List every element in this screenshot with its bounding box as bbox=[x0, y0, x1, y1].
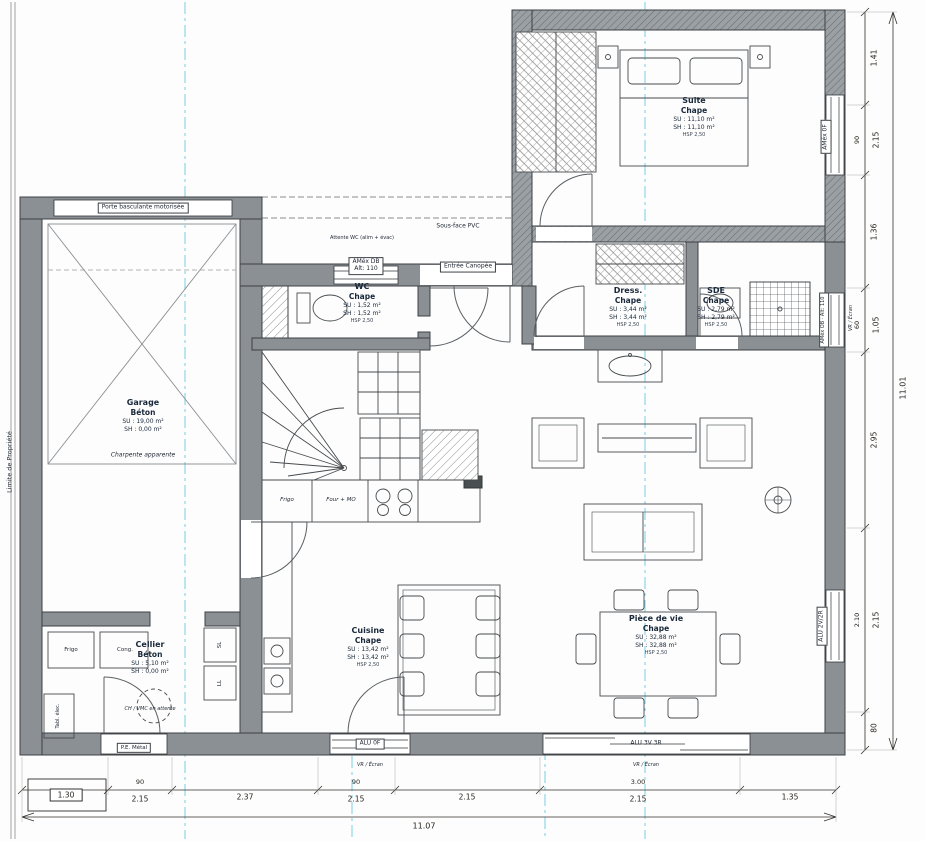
dim-right-4: 2.95 bbox=[870, 432, 879, 449]
room-name: Pièce de vie bbox=[629, 614, 683, 624]
room-label-dress: Dress. Chape SU : 3,44 m² SH : 3,44 m² H… bbox=[609, 286, 647, 328]
appliance-lave-linge: LL bbox=[217, 680, 223, 686]
dim-right-2: 1.36 bbox=[870, 224, 879, 241]
dim-bottom-5: 2.15 bbox=[630, 795, 647, 804]
room-hsp: HSP 2,50 bbox=[343, 318, 381, 325]
dim-bottom-3-width: 90 bbox=[352, 778, 360, 786]
duct-shaft bbox=[262, 286, 288, 338]
living-furniture bbox=[532, 418, 791, 718]
room-su: SU : 3,44 m² bbox=[609, 306, 647, 314]
room-sh: SH : 1,52 m² bbox=[343, 310, 381, 318]
kitchen-counters bbox=[262, 480, 480, 712]
room-floor: Chape bbox=[673, 106, 715, 116]
room-sh: SH : 2,79 m² bbox=[697, 314, 735, 322]
garage-note: Charpente apparente bbox=[111, 453, 175, 460]
bedroom-furniture bbox=[516, 32, 770, 172]
vr-ecran-label-1: VR / Écran bbox=[357, 763, 383, 769]
room-name: Cuisine bbox=[347, 626, 389, 636]
room-su: SU : 2,79 m² bbox=[697, 306, 735, 314]
room-sh: SH : 0,00 m² bbox=[131, 668, 169, 676]
appliance-tableau: Tabl. élec. bbox=[56, 704, 62, 729]
room-floor: Béton bbox=[122, 408, 163, 418]
room-label-sde: SDE Chape SU : 2,79 m² SH : 2,79 m² HSP … bbox=[697, 286, 735, 328]
dim-right-3: 1.05 bbox=[872, 317, 881, 334]
room-su: SU : 32,88 m² bbox=[629, 634, 683, 642]
room-floor: Chape bbox=[347, 636, 389, 646]
room-floor: Chape bbox=[343, 292, 381, 302]
dim-bottom-5-width: 3.00 bbox=[631, 778, 645, 786]
property-line bbox=[11, 2, 15, 839]
room-sh: SH : 13,42 m² bbox=[347, 654, 389, 662]
dim-right-5: 2.15 bbox=[872, 612, 881, 629]
window-alu-0f-label: ALU 0F bbox=[356, 739, 385, 750]
dim-bottom-0: 1.30 bbox=[50, 789, 83, 802]
room-floor: Chape bbox=[697, 296, 735, 306]
room-sh: SH : 0,00 m² bbox=[122, 426, 163, 434]
dim-right-3-width: 60 bbox=[853, 321, 861, 329]
sous-face-label: Sous-face PVC bbox=[436, 224, 479, 231]
canopy-entry-label: Entrée Canopée bbox=[440, 262, 496, 273]
room-name: SDE bbox=[697, 286, 735, 296]
room-name: WC bbox=[343, 282, 381, 292]
room-sh: SH : 11,10 m² bbox=[673, 124, 715, 132]
dim-bottom-3: 2.15 bbox=[348, 795, 365, 804]
room-name: Suite bbox=[673, 96, 715, 106]
dim-right-1: 2.15 bbox=[872, 132, 881, 149]
dim-bottom-1: 2.15 bbox=[132, 795, 149, 804]
room-name: Cellier bbox=[131, 640, 169, 650]
room-su: SU : 1,52 m² bbox=[343, 302, 381, 310]
window-glazing-lines bbox=[332, 97, 839, 750]
room-su: SU : 19,00 m² bbox=[122, 418, 163, 426]
appliance-congelateur: Cong. bbox=[117, 647, 133, 653]
room-label-garage: Garage Béton SU : 19,00 m² SH : 0,00 m² bbox=[122, 398, 163, 434]
room-label-suite: Suite Chape SU : 11,10 m² SH : 11,10 m² … bbox=[673, 96, 715, 138]
room-label-wc: WC Chape SU : 1,52 m² SH : 1,52 m² HSP 2… bbox=[343, 282, 381, 324]
window-amex-0f-label: AMéx 0F bbox=[821, 120, 832, 154]
dim-right-5-width: 2.10 bbox=[853, 613, 861, 627]
room-su: SU : 11,10 m² bbox=[673, 116, 715, 124]
room-floor: Chape bbox=[609, 296, 647, 306]
dim-bottom-4: 2.15 bbox=[459, 793, 476, 802]
room-hsp: HSP 2,50 bbox=[629, 650, 683, 657]
floor-plan: Suite Chape SU : 11,10 m² SH : 11,10 m² … bbox=[0, 0, 925, 841]
appliance-frigo-cellier: Frigo bbox=[64, 647, 77, 653]
room-hsp: HSP 2,50 bbox=[609, 322, 647, 329]
room-sh: SH : 3,44 m² bbox=[609, 314, 647, 322]
room-floor: Chape bbox=[629, 624, 683, 634]
room-hsp: HSP 2,50 bbox=[673, 132, 715, 139]
appliance-four-mo: Four + MO bbox=[326, 497, 355, 503]
room-label-cuisine: Cuisine Chape SU : 13,42 m² SH : 13,42 m… bbox=[347, 626, 389, 668]
garage-door-label: Porte basculante motorisée bbox=[98, 203, 189, 214]
dim-right-total: 11.01 bbox=[899, 377, 908, 400]
window-alt: Alt: 110 bbox=[352, 266, 379, 273]
room-name: Garage bbox=[122, 398, 163, 408]
room-sh: SH : 32,88 m² bbox=[629, 642, 683, 650]
dim-right-0: 1.41 bbox=[870, 50, 879, 67]
dim-right-6: 80 bbox=[870, 723, 879, 733]
cellier-note: CH / VMC en attente bbox=[124, 707, 175, 713]
door-pe-metal-label: P.E. Métal bbox=[117, 743, 151, 753]
dim-bottom-2: 2.37 bbox=[237, 793, 254, 802]
room-hsp: HSP 2,50 bbox=[697, 322, 735, 329]
window-amex-db-label: AMéx DB Alt: 110 bbox=[348, 257, 383, 275]
room-su: SU : 5,10 m² bbox=[131, 660, 169, 668]
staircase bbox=[262, 350, 478, 480]
kitchen-island bbox=[398, 585, 500, 715]
dim-right-1-width: 90 bbox=[853, 136, 861, 144]
room-name: Dress. bbox=[609, 286, 647, 296]
room-su: SU : 13,42 m² bbox=[347, 646, 389, 654]
window-alu-2v2r-label: ALU 2V/2R bbox=[817, 606, 828, 645]
vr-ecran-label-2: VR / Écran bbox=[633, 763, 659, 769]
dim-bottom-1-width: 90 bbox=[136, 778, 144, 786]
window-amex-ob-label: AMéx OB · Alt: 110 bbox=[819, 293, 829, 348]
dim-bottom-6: 1.35 bbox=[782, 793, 799, 802]
appliance-seche-linge: SL bbox=[217, 642, 223, 649]
property-line-label: Limite de Propriété bbox=[6, 431, 13, 493]
room-floor: Béton bbox=[131, 650, 169, 660]
room-label-piece-de-vie: Pièce de vie Chape SU : 32,88 m² SH : 32… bbox=[629, 614, 683, 656]
attente-note-label: Attente WC (alim + évac) bbox=[330, 236, 394, 242]
appliance-frigo-kitchen: Frigo bbox=[280, 497, 294, 503]
window-alu-3v3r-label: ALU 3V 3R bbox=[630, 741, 661, 748]
canopy-dashed-outline bbox=[262, 197, 512, 218]
room-label-cellier: Cellier Béton SU : 5,10 m² SH : 0,00 m² bbox=[131, 640, 169, 676]
room-hsp: HSP 2,50 bbox=[347, 662, 389, 669]
window-frames bbox=[54, 95, 844, 754]
dim-bottom-total: 11.07 bbox=[413, 822, 436, 831]
